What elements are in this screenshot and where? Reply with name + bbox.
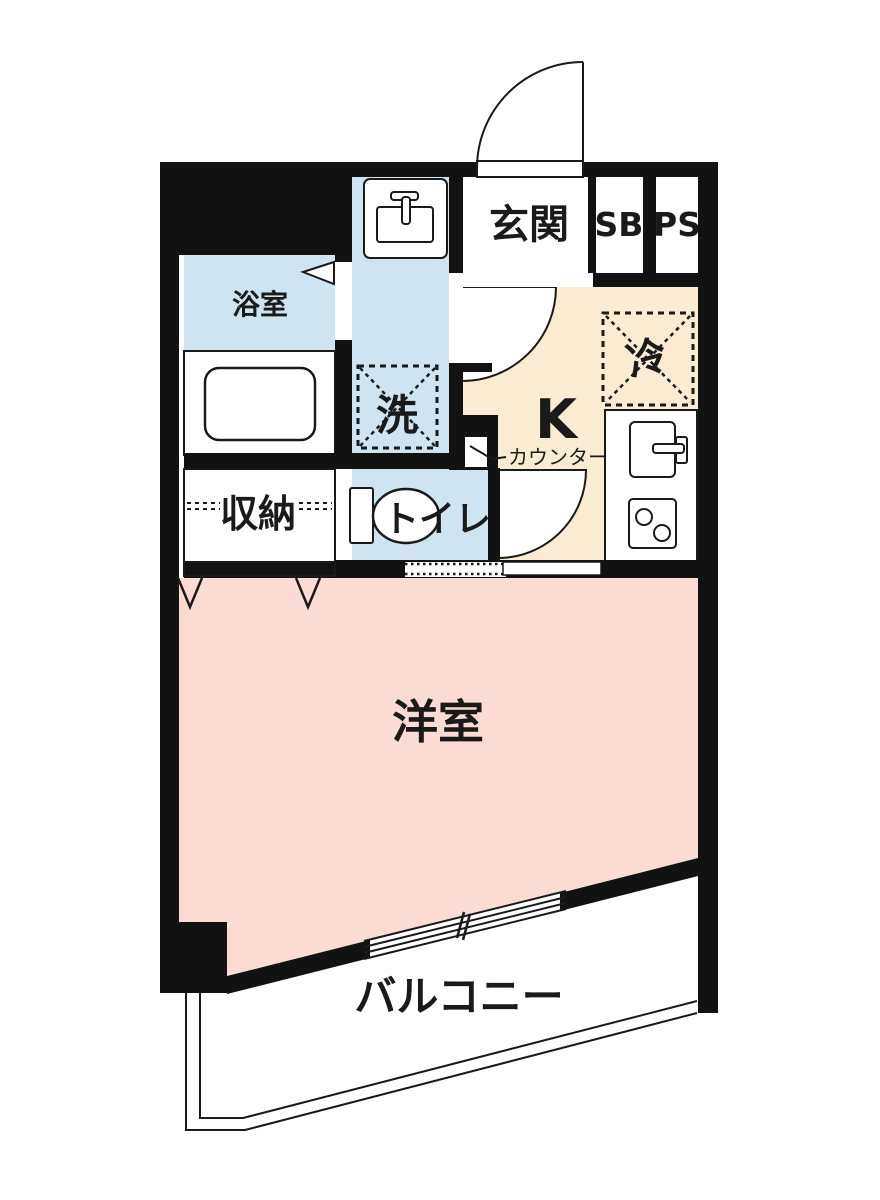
- bathroom-door-opening: [335, 262, 352, 340]
- open-doorway-dotted: [405, 562, 506, 577]
- hall-opening: [462, 273, 593, 287]
- bathroom-label: 浴室: [232, 288, 288, 321]
- balcony-label: バルコニー: [354, 972, 563, 1021]
- western-room-floor: [179, 578, 698, 976]
- entrance-label: 玄関: [489, 202, 569, 248]
- storage-label: 収納: [220, 492, 296, 536]
- floor-plan: 玄関 SB PS 浴室 洗 収納 トイレ K 冷 洋室 バルコニー カウンター: [0, 0, 880, 1200]
- stove-icon: [629, 499, 676, 548]
- pipe-space-label: PS: [653, 205, 701, 244]
- counter-label: カウンター: [508, 445, 608, 469]
- room-door-threshold: [503, 562, 601, 575]
- entrance-door-arc: [477, 62, 583, 168]
- shoe-box-label: SB: [595, 205, 644, 244]
- entrance-door: [477, 62, 583, 168]
- western-room-label: 洋室: [392, 695, 484, 749]
- bathtub-icon: [205, 368, 315, 440]
- kitchen-label: K: [535, 388, 579, 451]
- floor-plan-page: 玄関 SB PS 浴室 洗 収納 トイレ K 冷 洋室 バルコニー カウンター: [0, 0, 880, 1200]
- entrance-opening: [477, 161, 583, 177]
- washbasin-icon: [364, 179, 447, 258]
- washer-label: 洗: [376, 391, 418, 440]
- counter-notch: [465, 437, 487, 467]
- washroom-door-opening: [449, 273, 463, 363]
- toilet-label: トイレ: [383, 499, 491, 540]
